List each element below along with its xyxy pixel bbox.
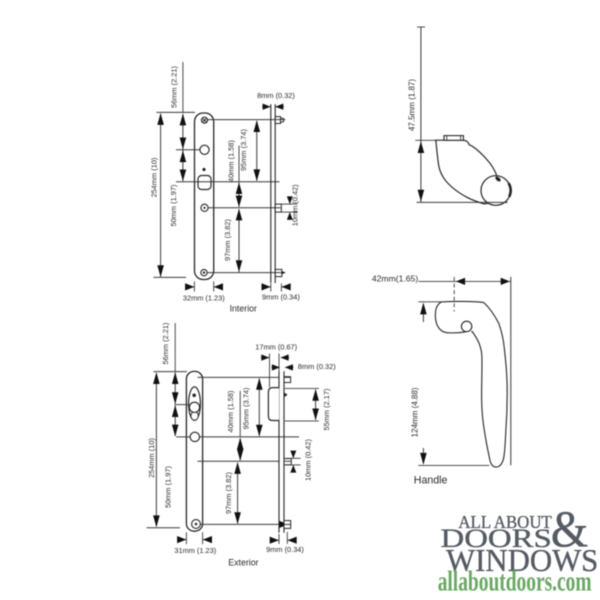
svg-text:95mm (3.74): 95mm (3.74)	[241, 388, 250, 430]
svg-text:254mm (10): 254mm (10)	[149, 158, 158, 198]
svg-text:50mm (1.97): 50mm (1.97)	[164, 466, 173, 508]
svg-text:9mm (0.34): 9mm (0.34)	[266, 545, 304, 554]
svg-text:56mm (2.21): 56mm (2.21)	[161, 323, 170, 365]
svg-text:97mm (3.82): 97mm (3.82)	[223, 219, 232, 261]
svg-text:Handle: Handle	[414, 474, 448, 486]
svg-text:Interior: Interior	[230, 304, 257, 314]
svg-text:17mm (0.67): 17mm (0.67)	[255, 342, 297, 351]
svg-text:32mm (1.23): 32mm (1.23)	[183, 293, 225, 302]
svg-text:124mm (4.88): 124mm (4.88)	[411, 387, 420, 437]
svg-text:56mm (2.21): 56mm (2.21)	[169, 66, 178, 108]
svg-text:97mm (3.82): 97mm (3.82)	[224, 472, 233, 514]
svg-text:55mm (2.17): 55mm (2.17)	[322, 389, 331, 431]
svg-text:50mm (1.97): 50mm (1.97)	[169, 185, 178, 227]
svg-text:40mm (1.58): 40mm (1.58)	[226, 391, 235, 433]
svg-text:42mm(1.65): 42mm(1.65)	[372, 273, 418, 283]
svg-text:47.5mm (1.87): 47.5mm (1.87)	[407, 79, 416, 131]
svg-text:95mm (3.74): 95mm (3.74)	[239, 129, 248, 171]
svg-text:10mm (0.42): 10mm (0.42)	[303, 439, 312, 481]
svg-text:allaboutdoors.com: allaboutdoors.com	[438, 567, 592, 598]
svg-text:10mm (0.42): 10mm (0.42)	[290, 184, 299, 226]
svg-text:9mm (0.34): 9mm (0.34)	[262, 293, 300, 302]
svg-text:254mm (10): 254mm (10)	[147, 438, 156, 478]
svg-text:8mm (0.32): 8mm (0.32)	[257, 91, 295, 100]
svg-text:40mm (1.58): 40mm (1.58)	[226, 140, 235, 182]
svg-text:8mm (0.32): 8mm (0.32)	[298, 362, 336, 371]
svg-text:Exterior: Exterior	[228, 558, 258, 568]
svg-text:31mm (1.23): 31mm (1.23)	[174, 546, 216, 555]
